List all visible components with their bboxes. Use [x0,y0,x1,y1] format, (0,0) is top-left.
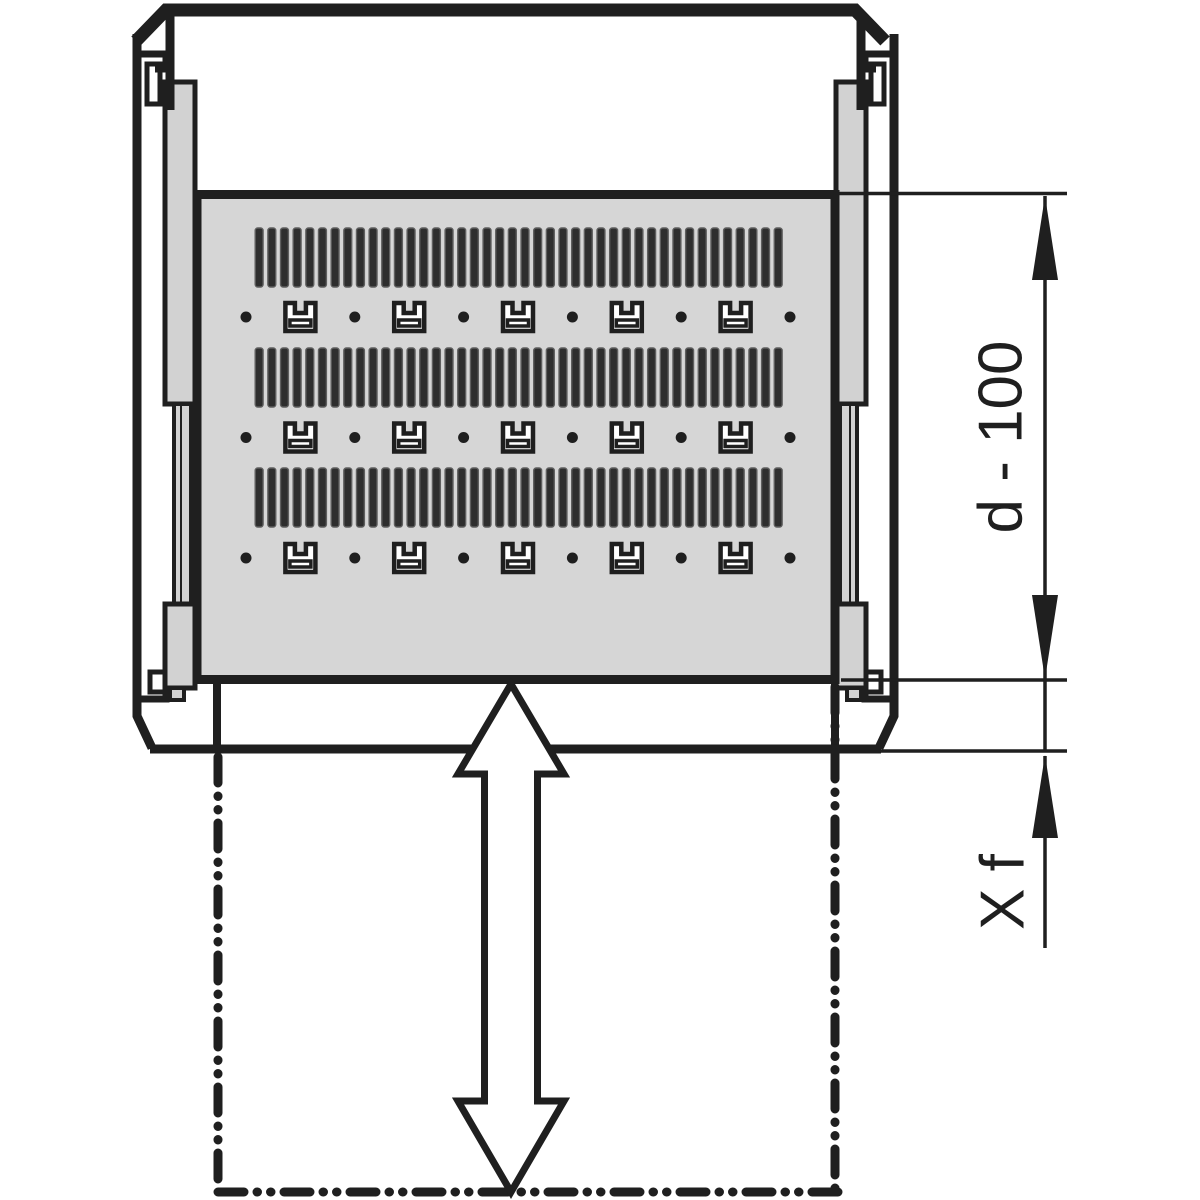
fastener-dot [349,312,360,323]
fastener-dot [241,553,252,564]
vent-slat [508,348,516,407]
vent-slat [496,348,504,407]
vent-slat [546,228,554,287]
mounting-slot-slot [725,320,746,326]
vent-slat [356,348,364,407]
cabinet-right-wall [879,34,894,748]
vent-slat [597,348,605,407]
dimension-arrowhead-up [1032,196,1058,280]
vent-slat [483,228,491,287]
vent-slat [648,468,656,527]
fastener-dot [241,432,252,443]
mounting-slot-slot [399,441,420,447]
vent-slat [635,348,643,407]
fastener-dot [785,312,796,323]
vent-slat [458,348,466,407]
vent-slat [559,228,567,287]
vent-slat [597,228,605,287]
vent-slat [306,348,314,407]
vent-slat [268,468,276,527]
vent-slat [483,348,491,407]
vent-slat [369,348,377,407]
vent-slat [610,348,618,407]
vent-slat [394,348,402,407]
vent-slat [584,348,592,407]
vent-slat [534,228,542,287]
fastener-dot [676,432,687,443]
vent-slat [382,228,390,287]
fastener-dot [676,553,687,564]
vent-slat [736,348,744,407]
vent-slat [559,348,567,407]
vent-slat [660,348,668,407]
vent-slat [572,348,580,407]
corner-inner-posts [170,16,861,110]
slide-rail-left [150,82,195,700]
vent-slat [648,228,656,287]
fastener-dot [349,432,360,443]
vent-slat [711,468,719,527]
vent-slat [293,348,301,407]
vent-slat [420,468,428,527]
cabinet-top-edge [136,10,885,41]
vent-slat [407,348,415,407]
extension-dimension-label: X f [969,853,1038,930]
vent-slat [483,468,491,527]
vent-slat [319,348,327,407]
vent-slat [534,468,542,527]
vent-slat [660,228,668,287]
mounting-slot-slot [290,441,311,447]
vent-slat [369,228,377,287]
vent-slat [559,468,567,527]
vent-slat [407,228,415,287]
mounting-slot-slot [725,441,746,447]
vent-slat [584,468,592,527]
vent-slat [686,228,694,287]
vent-slat [724,468,732,527]
rail-middle-segment [174,404,191,604]
vent-slat [774,228,782,287]
fastener-dot [458,553,469,564]
vent-slat [306,228,314,287]
vent-slat [521,468,529,527]
vent-slat [369,468,377,527]
vent-slat [622,228,630,287]
vent-slat [356,228,364,287]
vent-slat [635,228,643,287]
vent-slat [255,228,263,287]
vent-slat [470,468,478,527]
vent-slat [508,468,516,527]
vent-slat [686,348,694,407]
vent-slat [420,228,428,287]
vent-slat [281,348,289,407]
mounting-slot-slot [508,320,529,326]
vent-slat [255,348,263,407]
vent-slat [686,468,694,527]
rail-lower-segment [165,604,195,688]
vent-slat [420,348,428,407]
vent-slat [281,228,289,287]
vent-slat [319,468,327,527]
vent-slat [331,348,339,407]
depth-dimension-label: d - 100 [967,340,1036,533]
mounting-slot-slot [725,561,746,567]
vent-slat [458,228,466,287]
vent-slat [344,468,352,527]
mounting-slot-slot [290,561,311,567]
vent-slat [293,228,301,287]
vent-slat [546,468,554,527]
vent-slat [331,468,339,527]
vent-slat [749,348,757,407]
vent-slat [508,228,516,287]
vent-slat [597,468,605,527]
rail-upper-segment [165,82,195,404]
vent-slat [432,468,440,527]
fastener-dot [349,553,360,564]
vent-slat [698,348,706,407]
vent-slat [255,468,263,527]
vent-slat [356,468,364,527]
vent-slat [293,468,301,527]
vent-slat [724,228,732,287]
vent-slat [774,468,782,527]
vent-slat [394,468,402,527]
vent-slat [382,348,390,407]
vent-slat [673,468,681,527]
vent-slat [432,348,440,407]
slide-direction-arrow [458,684,564,1192]
vent-slat [534,348,542,407]
vent-slat [698,228,706,287]
vent-slat [445,468,453,527]
vent-slat [584,228,592,287]
fastener-dot [458,432,469,443]
vent-slat [496,468,504,527]
rail-middle-segment [840,404,857,604]
vent-slat [344,348,352,407]
vent-slat [470,348,478,407]
rack-shelf-diagram: d - 100 X f [0,0,1200,1200]
vent-slat [432,228,440,287]
vent-slat [458,468,466,527]
mounting-slot-slot [616,441,637,447]
fastener-dot [567,432,578,443]
vent-slat [762,228,770,287]
rail-foot-tab [170,688,184,700]
mounting-slot-slot [399,561,420,567]
mounting-slot-slot [616,320,637,326]
dimension-arrowhead-down [1032,595,1058,679]
vent-slat [610,468,618,527]
rail-lower-segment [836,604,866,688]
mounting-slot-slot [290,320,311,326]
fastener-dot [458,312,469,323]
technical-drawing-page: d - 100 X f [0,0,1200,1200]
vent-slat [496,228,504,287]
dimension-annotations: d - 100 X f [839,194,1067,949]
vent-slat [521,348,529,407]
vent-slat [445,228,453,287]
vent-slat [319,228,327,287]
vent-slat [673,228,681,287]
vent-slat [648,348,656,407]
rail-foot-step [866,672,881,692]
vent-slat [749,228,757,287]
slide-rail-right [836,82,881,700]
fastener-dot [241,312,252,323]
vent-slat [470,228,478,287]
dimension-arrowhead-extension [1032,755,1058,838]
vent-slat [762,468,770,527]
vent-slat [306,468,314,527]
vent-slat [268,228,276,287]
rail-upper-segment [836,82,866,404]
vent-slat [635,468,643,527]
rail-foot-step [150,672,165,692]
fastener-dot [676,312,687,323]
vent-slat [344,228,352,287]
vent-slat [331,228,339,287]
fastener-dot [567,312,578,323]
vent-slat [698,468,706,527]
fastener-dot [785,553,796,564]
fastener-dot [567,553,578,564]
fastener-dot [785,432,796,443]
vent-slat [660,468,668,527]
vent-slat [382,468,390,527]
vent-slat [281,468,289,527]
vent-slat [736,468,744,527]
vent-slat [572,468,580,527]
vent-slat [749,468,757,527]
rail-foot-tab [847,688,861,700]
vent-slat [774,348,782,407]
vent-slat [268,348,276,407]
vent-slat [445,348,453,407]
vent-slat [724,348,732,407]
vent-slat [762,348,770,407]
mounting-slot-slot [399,320,420,326]
vent-slat [736,228,744,287]
mounting-slot-slot [508,441,529,447]
vent-slat [711,348,719,407]
vent-slat [622,468,630,527]
vent-slat [572,228,580,287]
vent-slat [521,228,529,287]
vent-slat [622,348,630,407]
vent-slat [673,348,681,407]
mounting-slot-slot [508,561,529,567]
cabinet-left-wall [137,34,152,748]
mounting-slot-slot [616,561,637,567]
vent-slat [610,228,618,287]
vent-slat [394,228,402,287]
vent-slat [546,348,554,407]
vent-slat [407,468,415,527]
vent-slat [711,228,719,287]
